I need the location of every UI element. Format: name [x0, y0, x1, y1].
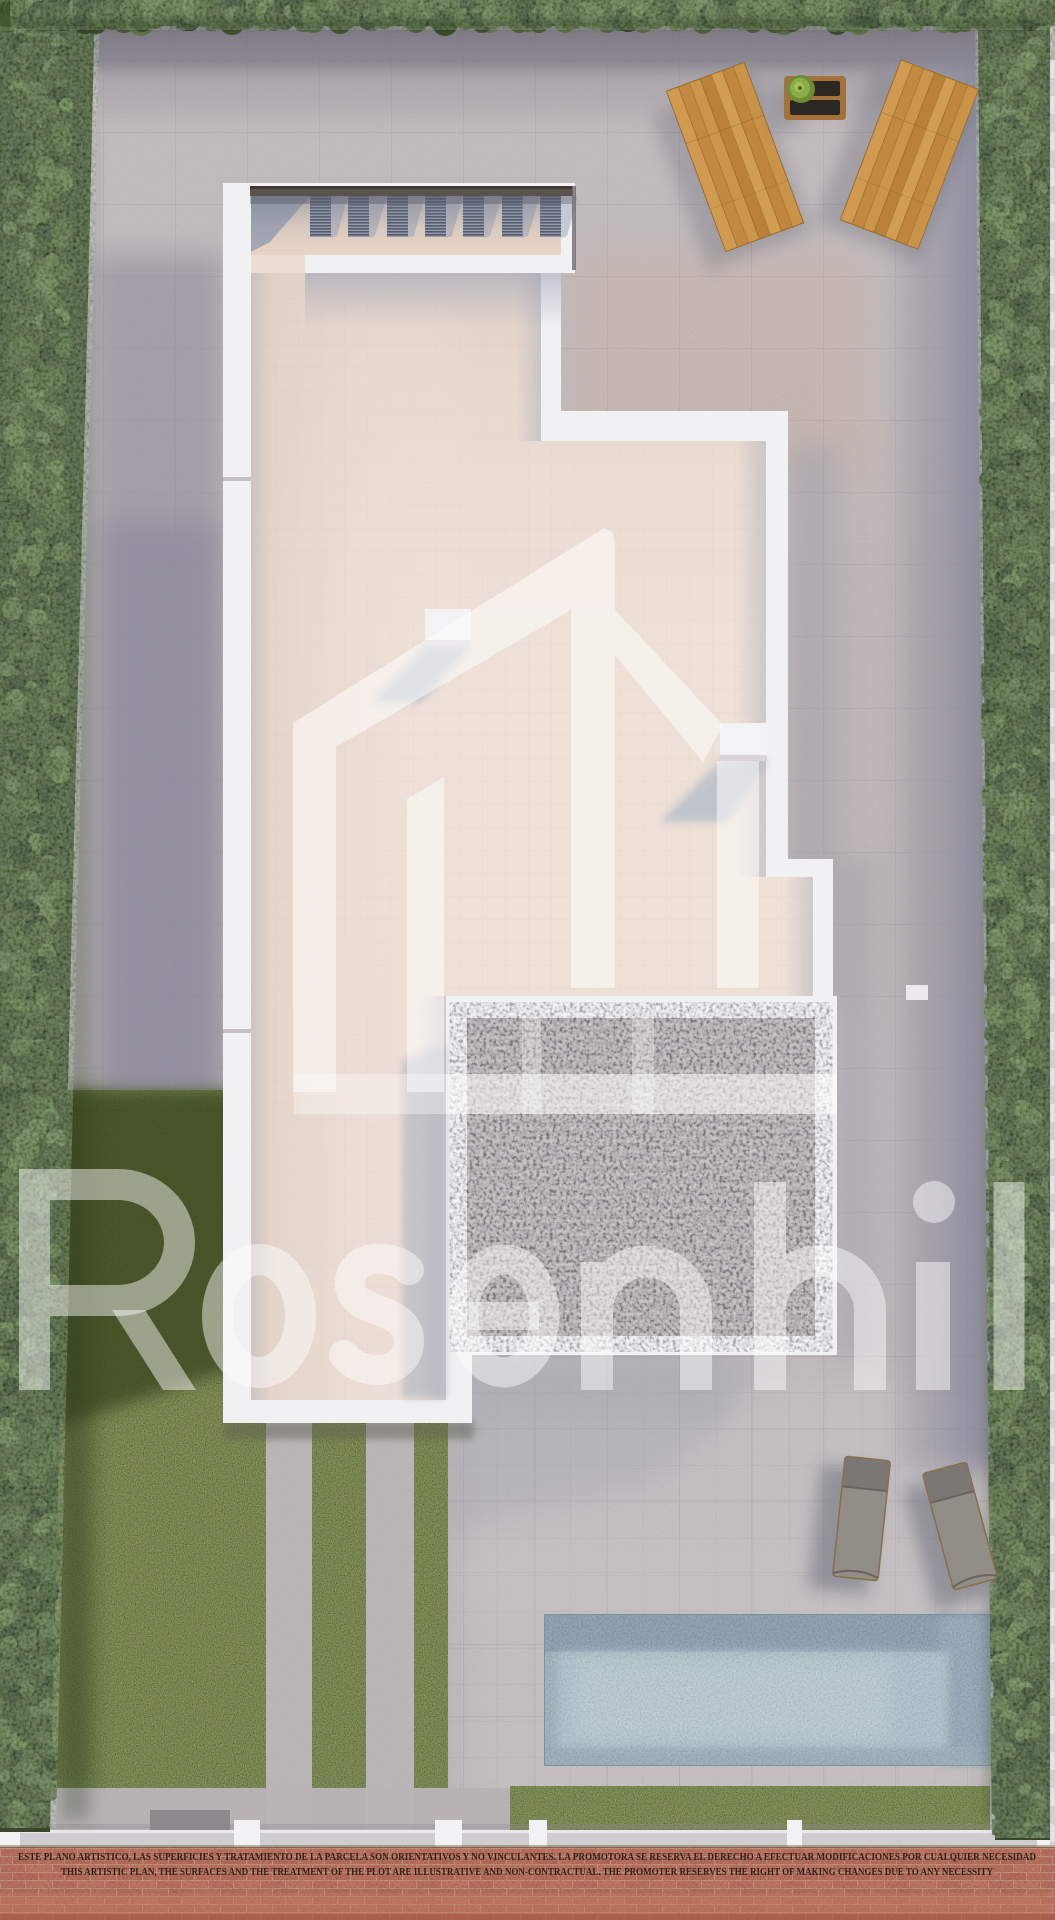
svg-text:ESTE PLANO ARTISTICO, LAS SUPE: ESTE PLANO ARTISTICO, LAS SUPERFICIES Y …	[18, 1851, 1036, 1863]
svg-text:THIS ARTISTIC PLAN, THE SURFAC: THIS ARTISTIC PLAN, THE SURFACES AND THE…	[61, 1866, 993, 1878]
